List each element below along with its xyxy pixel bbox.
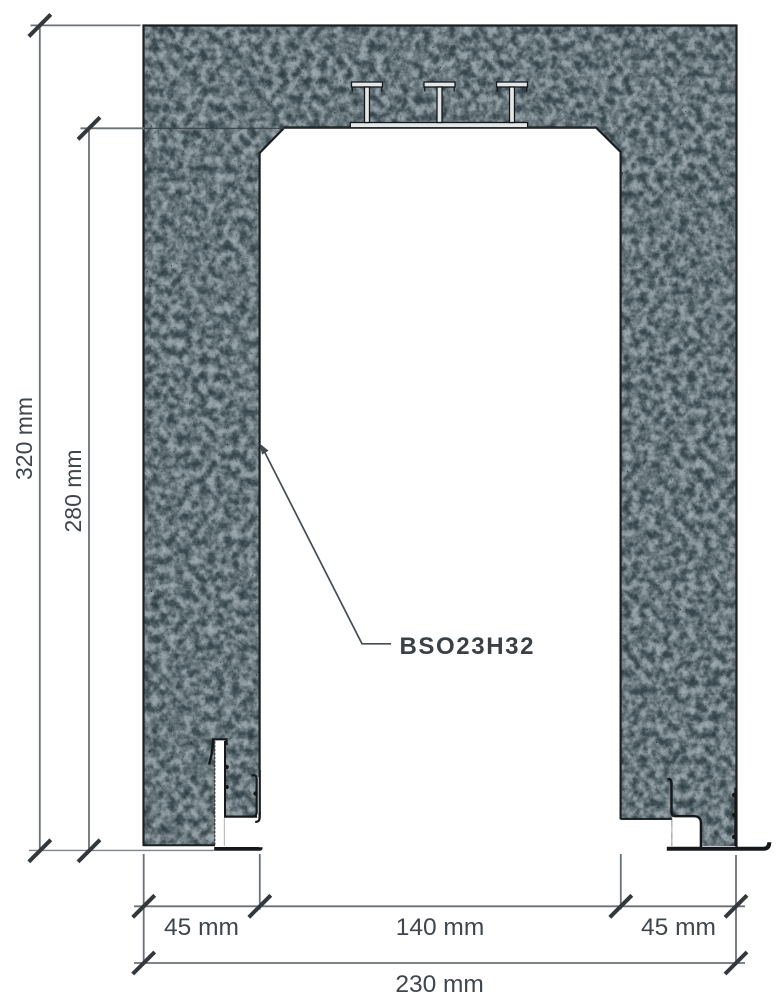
svg-text:230 mm: 230 mm	[395, 971, 484, 998]
svg-text:140 mm: 140 mm	[396, 914, 485, 941]
svg-text:BSO23H32: BSO23H32	[400, 633, 536, 660]
svg-text:45 mm: 45 mm	[164, 914, 239, 941]
svg-text:320 mm: 320 mm	[11, 397, 37, 480]
svg-text:45 mm: 45 mm	[641, 914, 716, 941]
svg-text:280 mm: 280 mm	[60, 449, 86, 532]
